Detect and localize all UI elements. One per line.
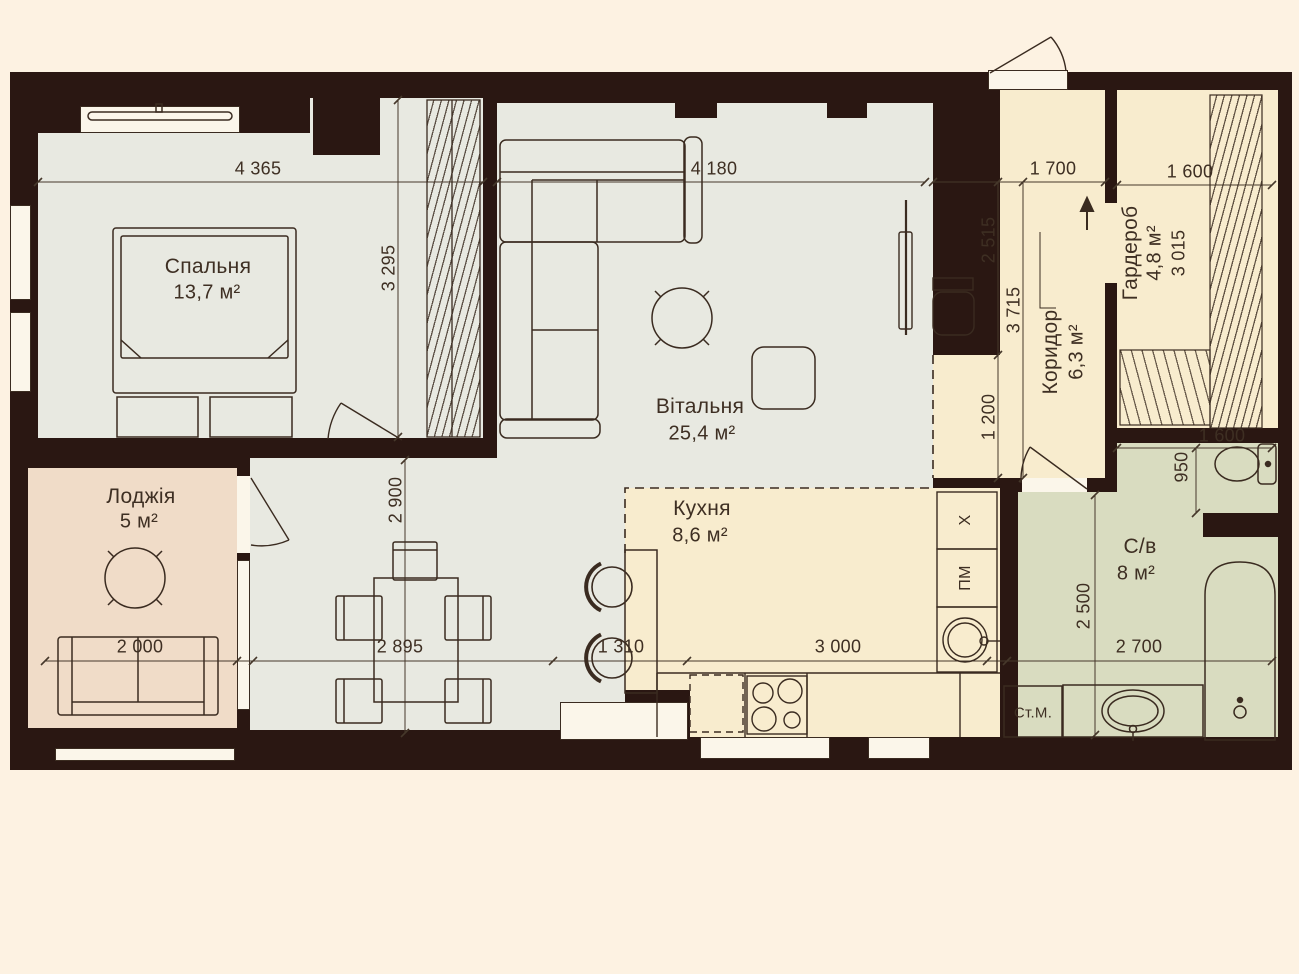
bedroom-niche	[80, 106, 240, 133]
corridor-area: 6,3 м²	[1066, 324, 1089, 380]
kitchen-window-1	[700, 737, 830, 759]
dim-bath-width: 2 700	[1116, 637, 1163, 658]
dim-corridor-total: 3 715	[1004, 287, 1025, 334]
bathroom-door-opening	[1022, 478, 1087, 492]
kitchen-label: Кухня	[673, 497, 731, 521]
dim-bar-width: 1 310	[598, 637, 645, 658]
dim-wardrobe-width: 1 600	[1167, 162, 1214, 183]
living-window	[560, 702, 688, 740]
wardrobe-shelves-hatch	[1210, 95, 1262, 428]
room-corridor	[1000, 90, 1105, 478]
wall-bath-separator	[1203, 513, 1278, 537]
wall-pier-2	[827, 103, 867, 118]
dim-corridor-lower: 1 200	[979, 394, 1000, 441]
living-label: Вітальня	[656, 395, 744, 419]
washing-machine-label: Ст.М.	[1014, 705, 1052, 722]
dim-bath-top-width: 1 600	[1199, 426, 1246, 447]
room-bedroom	[38, 98, 483, 438]
dim-wc-depth: 950	[1172, 452, 1193, 483]
bedroom-closet-hatch	[427, 100, 480, 437]
kitchen-area: 8,6 м²	[672, 525, 728, 548]
fridge-label: X	[957, 515, 975, 526]
floor-plan: Спальня 13,7 м² Вітальня 25,4 м² Кухня 8…	[0, 0, 1299, 974]
dim-loggia-width: 2 000	[117, 637, 164, 658]
dim-kitchen-width: 3 000	[815, 637, 862, 658]
living-area: 25,4 м²	[669, 423, 736, 446]
dim-dining-width: 2 895	[377, 637, 424, 658]
bedroom-window-2	[10, 312, 31, 392]
entrance-door	[990, 37, 1066, 73]
loggia-area: 5 м²	[120, 511, 158, 534]
corridor-label: Коридор	[1039, 309, 1063, 394]
entrance-opening	[988, 70, 1068, 90]
loggia-door-opening	[237, 476, 250, 553]
wardrobe-label: Гардероб	[1119, 206, 1143, 301]
room-living-dining	[250, 458, 625, 730]
bedroom-area: 13,7 м²	[174, 282, 241, 305]
wardrobe-area: 4,8 м²	[1144, 225, 1167, 281]
dim-living-depth: 2 900	[386, 477, 407, 524]
bathroom-label: С/в	[1123, 535, 1156, 559]
dim-bath-depth: 2 500	[1074, 583, 1095, 630]
loggia-label: Лоджія	[106, 485, 175, 509]
bedroom-label: Спальня	[165, 255, 251, 279]
wall-pier-bedroom	[313, 98, 380, 155]
wardrobe-depth-dim: 3 015	[1169, 230, 1190, 277]
dim-bedroom-depth: 3 295	[379, 245, 400, 292]
bedroom-window-1	[10, 205, 31, 300]
wall-pier-1	[675, 103, 717, 118]
loggia-window-bottom	[55, 748, 235, 761]
wardrobe-shelves-hatch-2	[1120, 350, 1210, 425]
dim-corridor-width: 1 700	[1030, 159, 1077, 180]
dim-bedroom-width: 4 365	[235, 159, 282, 180]
kitchen-window-2	[868, 737, 930, 759]
dishwasher-label: ПМ	[957, 565, 975, 590]
room-bathroom-wc-nook	[1117, 443, 1278, 492]
dim-corridor-upper: 2 515	[979, 217, 1000, 264]
bathroom-area: 8 м²	[1117, 563, 1155, 586]
dim-living-width: 4 180	[691, 159, 738, 180]
loggia-window	[237, 560, 250, 710]
